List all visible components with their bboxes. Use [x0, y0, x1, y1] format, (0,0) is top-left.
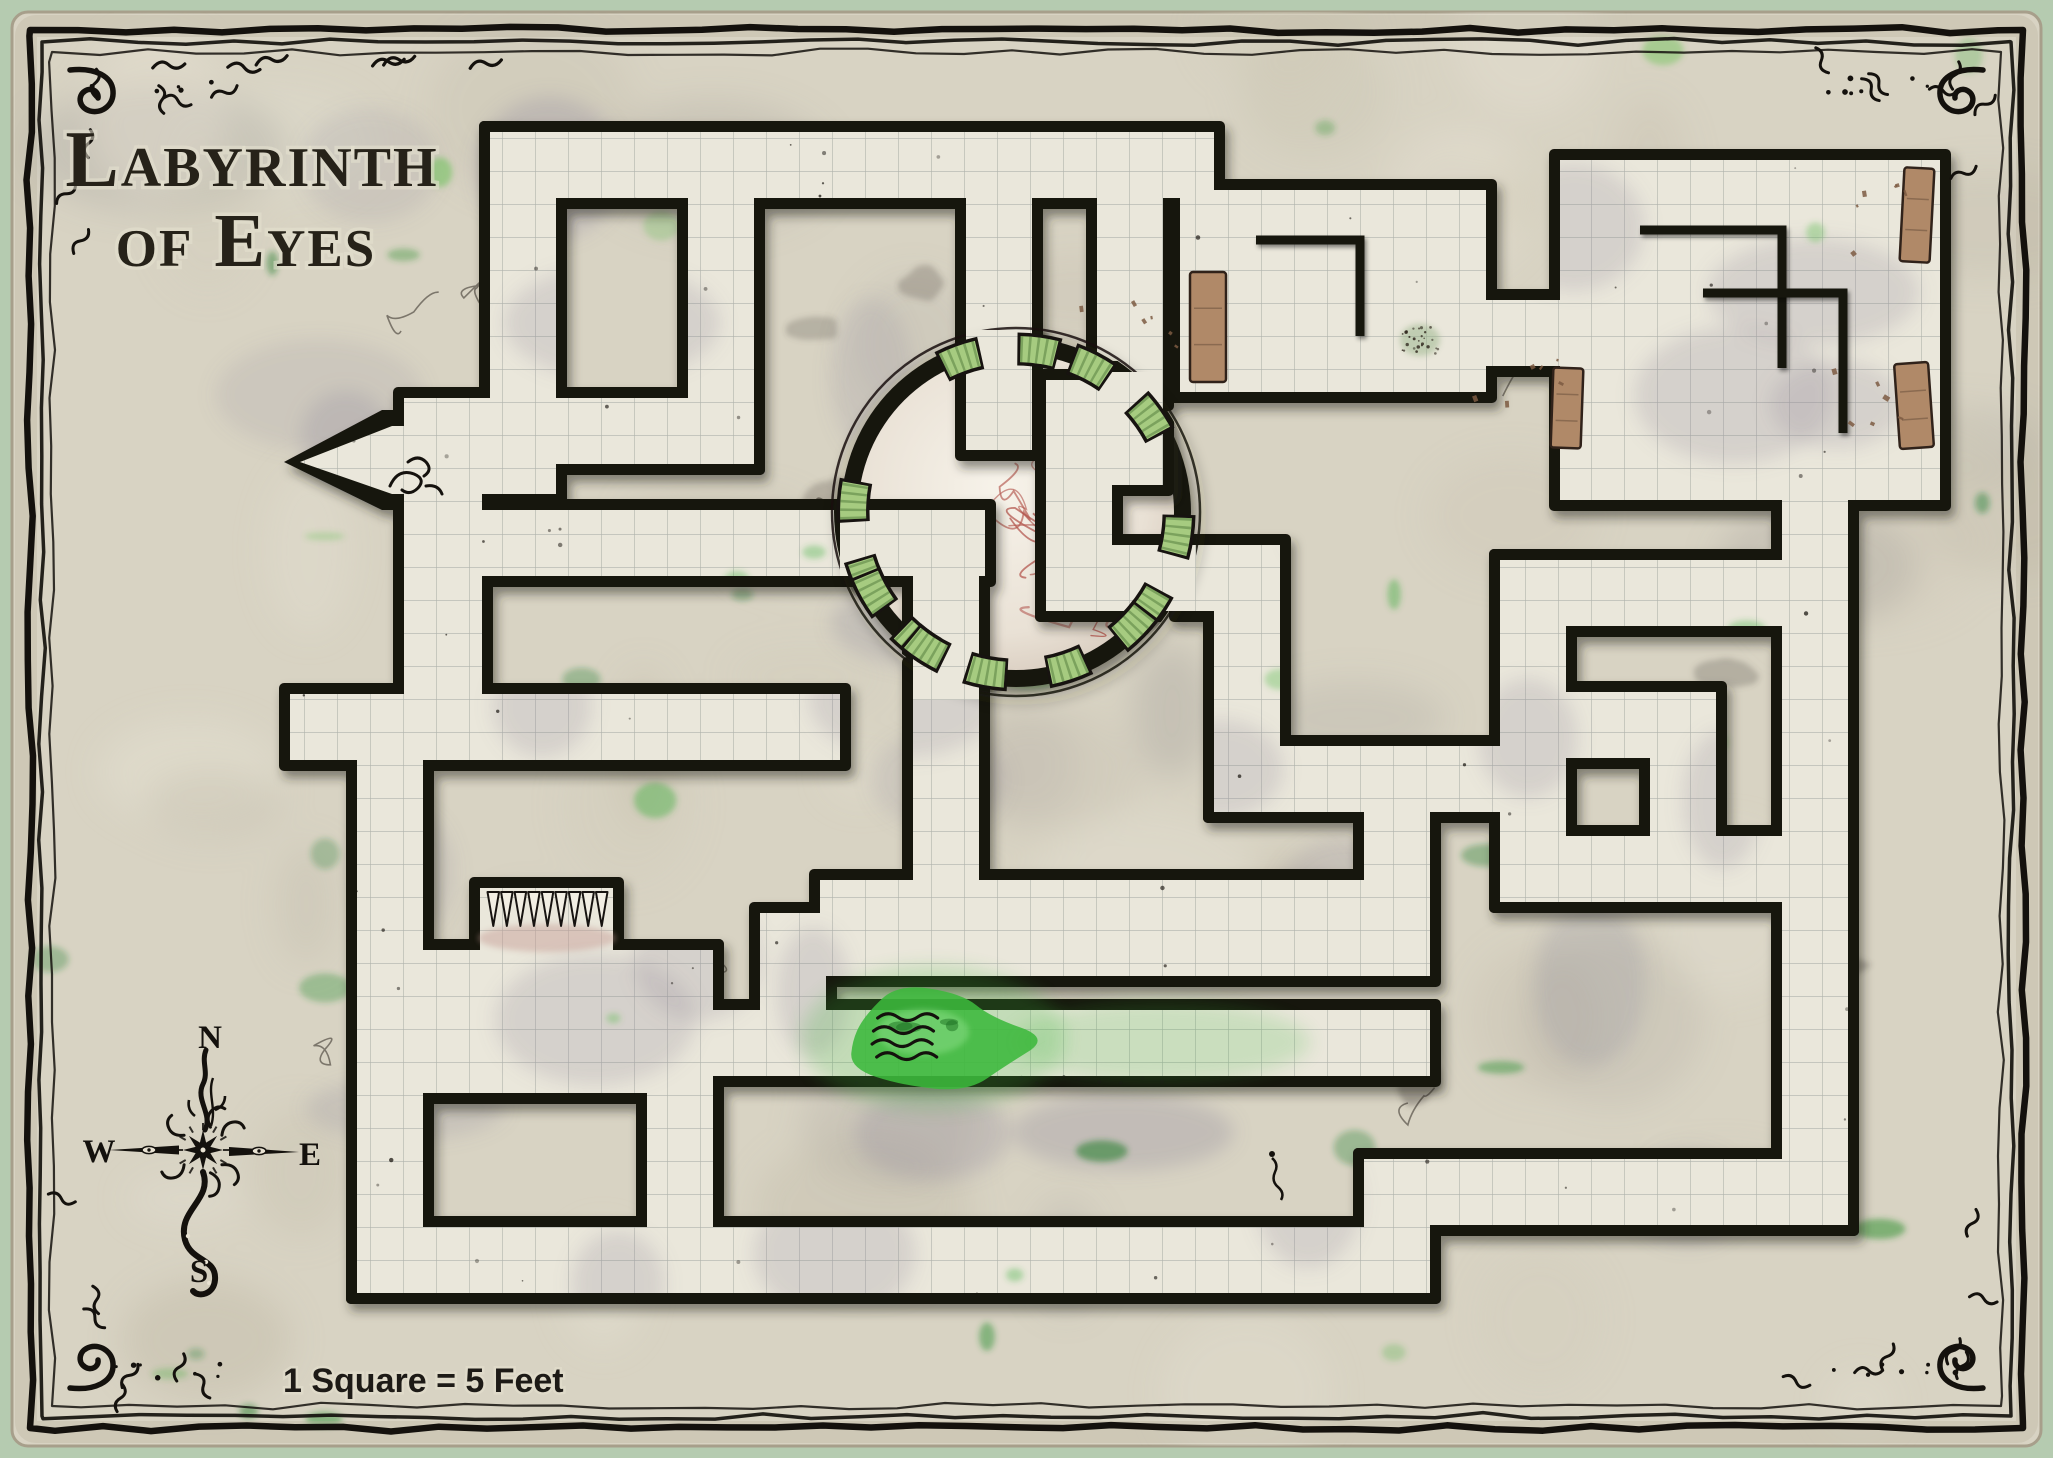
map-title-line1: Labyrinth — [65, 116, 438, 204]
compass-west-label: W — [83, 1134, 116, 1170]
dungeon-map: N W E S Labyrinth of Eyes 1 Square = 5 F… — [0, 0, 2053, 1458]
rubble-pile — [1400, 324, 1440, 356]
compass-east-label: E — [299, 1137, 321, 1173]
compass-south-label: S — [190, 1254, 208, 1290]
map-title-line2: of Eyes — [116, 199, 376, 283]
compass-north-label: N — [198, 1020, 222, 1056]
scale-label: 1 Square = 5 Feet — [283, 1362, 564, 1400]
